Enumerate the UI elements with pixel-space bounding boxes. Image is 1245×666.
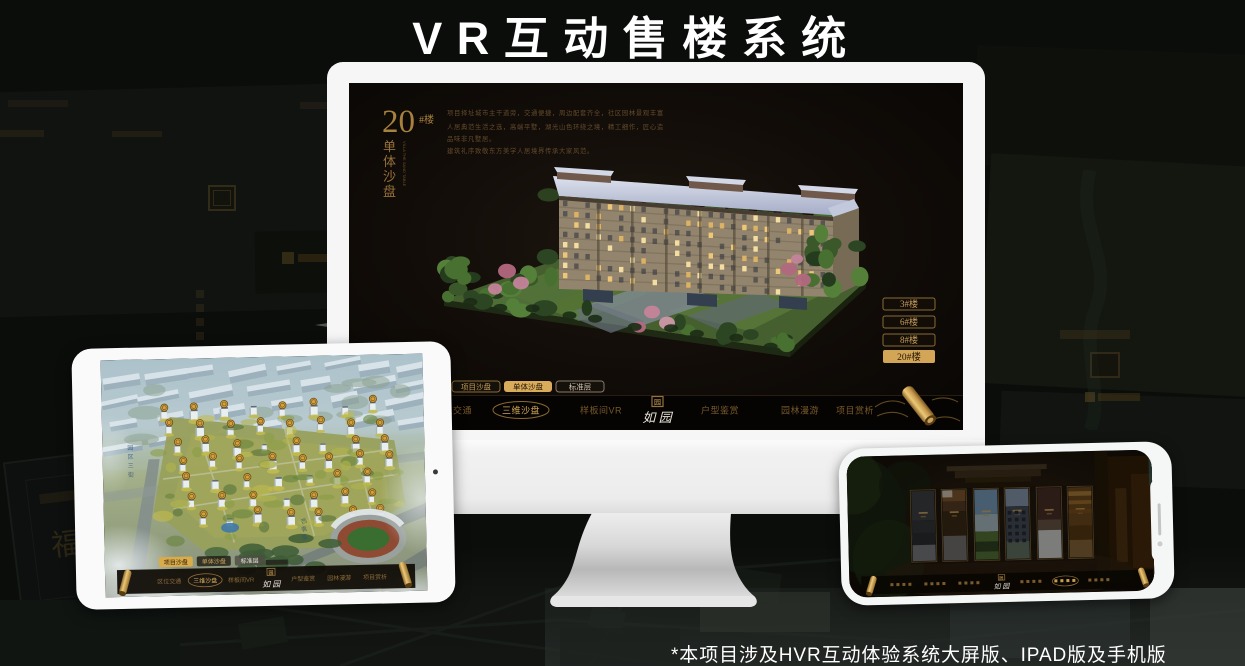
svg-text:园: 园 xyxy=(268,570,273,576)
svg-text:8#楼: 8#楼 xyxy=(900,334,918,345)
svg-text:盘: 盘 xyxy=(383,184,396,199)
svg-text:区: 区 xyxy=(128,454,134,461)
svg-text:单: 单 xyxy=(383,139,396,154)
svg-text:VILLA THE SAND TABLE: VILLA THE SAND TABLE xyxy=(402,141,407,187)
svg-text:项目赏析: 项目赏析 xyxy=(836,405,874,416)
svg-text:如 园: 如 园 xyxy=(642,410,673,425)
svg-text:建筑礼序致敬东方美学人居境界传承大家风范。: 建筑礼序致敬东方美学人居境界传承大家风范。 xyxy=(447,146,594,155)
svg-text:三维沙盘: 三维沙盘 xyxy=(502,405,540,416)
svg-text:街: 街 xyxy=(128,471,134,479)
svg-text:园: 园 xyxy=(127,445,133,452)
svg-text:园林漫游: 园林漫游 xyxy=(781,405,819,416)
svg-text:如 园: 如 园 xyxy=(262,580,281,589)
svg-text:项目择址城市主干道旁，交通便捷，周边配套齐全，社区园林景观丰: 项目择址城市主干道旁，交通便捷，周边配套齐全，社区园林景观丰富 xyxy=(447,108,664,117)
svg-text:标准层: 标准层 xyxy=(569,382,592,392)
svg-text:3#楼: 3#楼 xyxy=(900,298,918,309)
svg-text:6#楼: 6#楼 xyxy=(900,316,918,327)
svg-text:体: 体 xyxy=(383,154,396,169)
svg-text:20#楼: 20#楼 xyxy=(897,351,921,363)
svg-text:品味非凡墅居。: 品味非凡墅居。 xyxy=(447,134,496,143)
svg-text:园: 园 xyxy=(654,399,661,407)
svg-text:人居典范生活之选，高端平墅，湖光山色环绕之境，精工细作，匠心: 人居典范生活之选，高端平墅，湖光山色环绕之境，精工细作，匠心造 xyxy=(447,122,664,131)
svg-text:单体沙盘: 单体沙盘 xyxy=(513,382,543,392)
svg-text:项目沙盘: 项目沙盘 xyxy=(461,382,491,392)
svg-text:#楼: #楼 xyxy=(419,113,434,126)
svg-text:样板间VR: 样板间VR xyxy=(580,405,622,416)
svg-text:如 园: 如 园 xyxy=(994,582,1011,590)
svg-text:沙: 沙 xyxy=(383,169,396,184)
svg-text:三: 三 xyxy=(128,463,134,470)
svg-text:20: 20 xyxy=(382,104,415,140)
svg-text:户型鉴赏: 户型鉴赏 xyxy=(701,405,739,416)
